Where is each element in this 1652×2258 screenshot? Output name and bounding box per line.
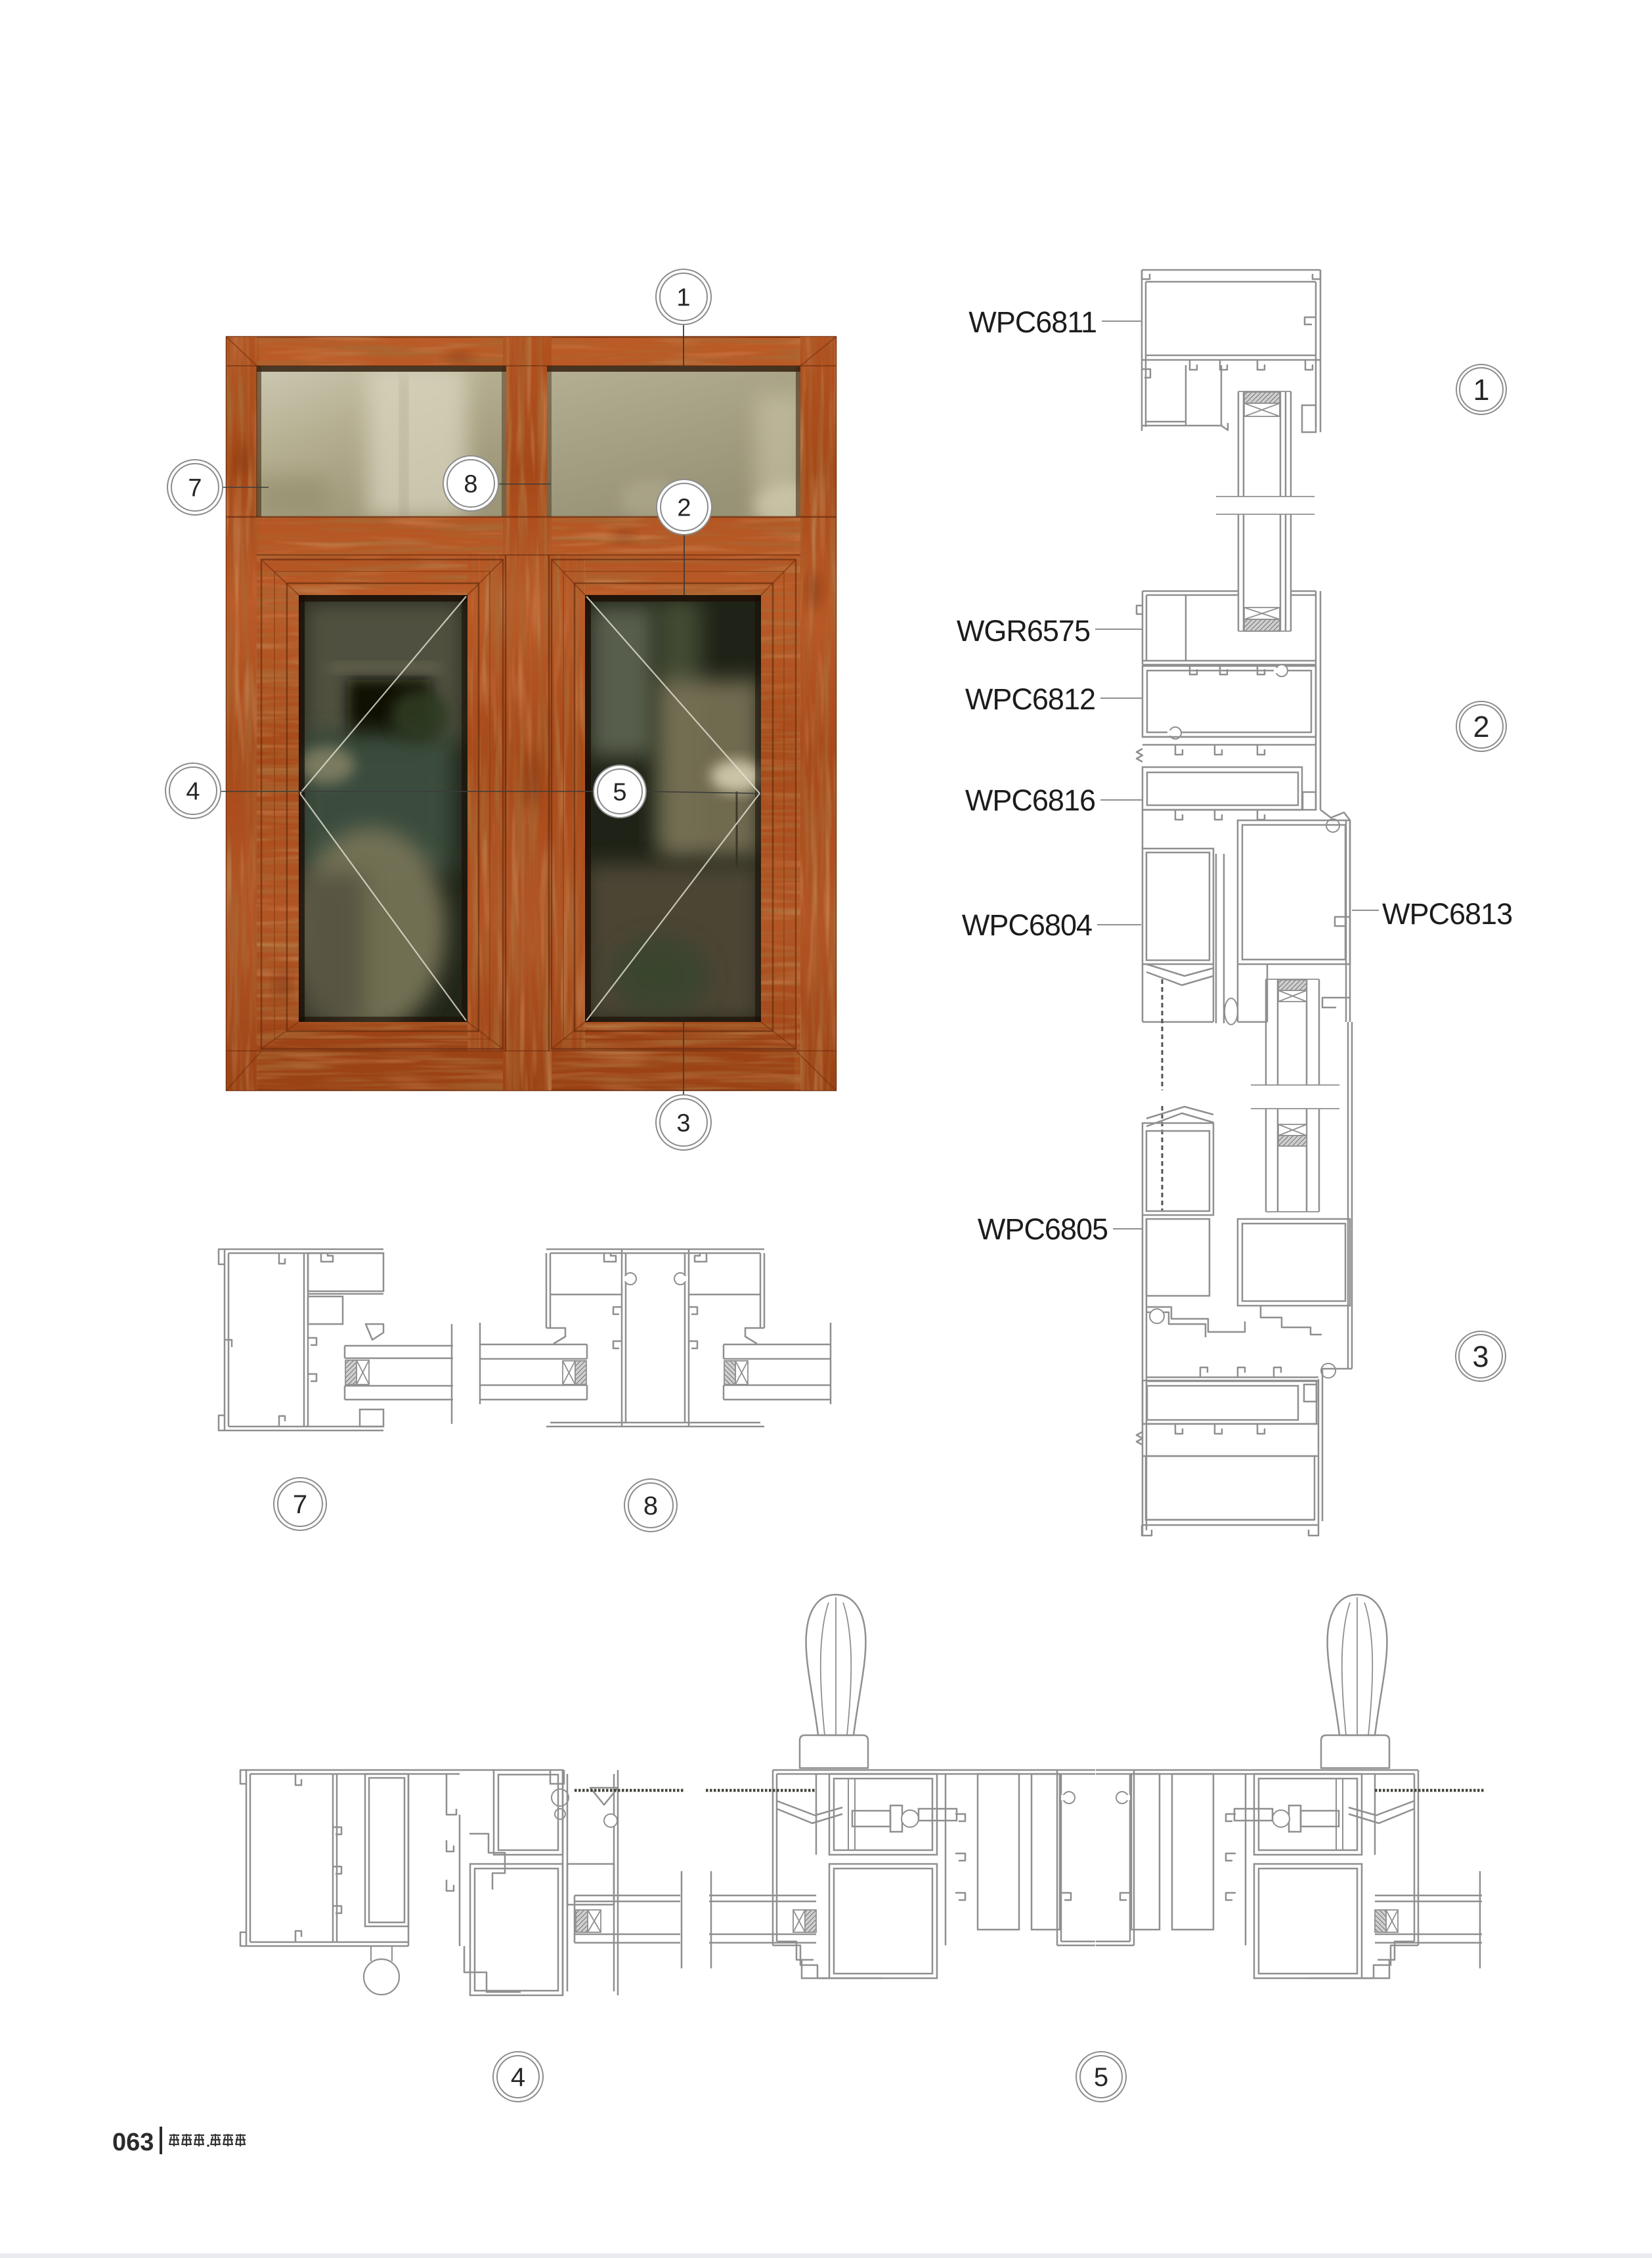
svg-text:5: 5: [613, 778, 626, 806]
svg-text:1: 1: [1473, 373, 1489, 407]
svg-text:3: 3: [1472, 1340, 1489, 1373]
svg-text:1: 1: [676, 284, 690, 311]
svg-text:2: 2: [677, 494, 691, 521]
svg-text:4: 4: [186, 778, 200, 805]
svg-text:8: 8: [464, 470, 477, 498]
svg-text:WPC6812: WPC6812: [965, 682, 1095, 716]
svg-text:7: 7: [188, 474, 202, 502]
svg-text:WPC6813: WPC6813: [1382, 897, 1512, 931]
svg-text:5: 5: [1094, 2063, 1108, 2092]
svg-text:WPC6805: WPC6805: [978, 1212, 1108, 1246]
svg-text:2: 2: [1473, 710, 1489, 743]
svg-text:WPC6816: WPC6816: [965, 784, 1095, 817]
svg-text:WPC6804: WPC6804: [962, 908, 1092, 942]
svg-text:8: 8: [643, 1492, 658, 1520]
svg-text:WGR6575: WGR6575: [957, 614, 1090, 648]
svg-text:7: 7: [293, 1490, 307, 1519]
svg-text:4: 4: [511, 2063, 525, 2092]
svg-text:3: 3: [676, 1109, 690, 1137]
svg-text:063: 063: [112, 2129, 154, 2156]
svg-text:WPC6811: WPC6811: [968, 305, 1097, 339]
